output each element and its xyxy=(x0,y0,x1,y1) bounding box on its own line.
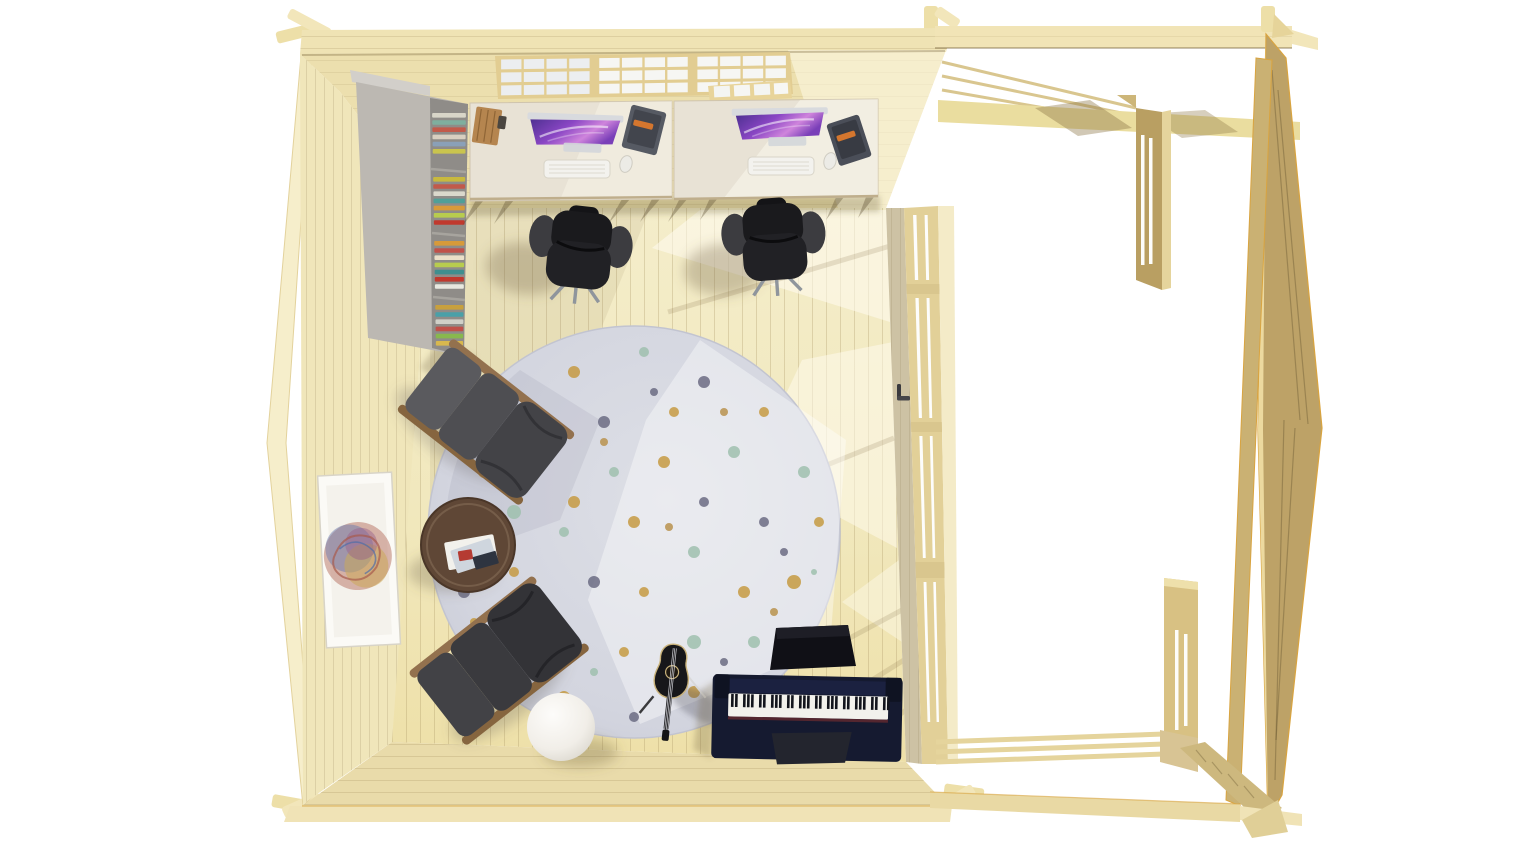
piano-black-key xyxy=(779,695,782,708)
piano-black-key xyxy=(819,696,822,709)
window-pane xyxy=(766,68,786,78)
piano-black-key xyxy=(871,697,874,710)
piano-black-key xyxy=(883,697,886,710)
piano-black-key xyxy=(835,696,838,709)
rug-dot xyxy=(609,467,619,477)
rug-dot xyxy=(650,388,658,396)
rug-dot xyxy=(699,497,709,507)
book-spine xyxy=(434,206,465,211)
rug-dot xyxy=(698,376,710,388)
rug-dot xyxy=(669,407,679,417)
rug-dot xyxy=(507,505,521,519)
window-pane xyxy=(524,72,544,82)
window-pane xyxy=(569,84,589,94)
rug-dot xyxy=(598,416,610,428)
rug-dot xyxy=(728,446,740,458)
window-pane xyxy=(547,84,567,94)
book-spine xyxy=(432,127,465,132)
rug-dot xyxy=(665,523,673,531)
rug-dot xyxy=(688,546,700,558)
piano-black-key xyxy=(743,694,746,707)
rug-dot xyxy=(814,517,824,527)
book-spine xyxy=(434,220,465,225)
base-plate xyxy=(284,806,952,822)
window-pane xyxy=(645,83,665,93)
guitar-headstock xyxy=(661,729,669,741)
rug-dot xyxy=(798,466,810,478)
window-pane xyxy=(667,70,687,80)
book-spine xyxy=(436,334,463,339)
window-pane xyxy=(743,69,763,79)
window-frame-bar xyxy=(915,562,944,578)
window-pane xyxy=(622,70,642,80)
piano-black-key xyxy=(831,696,834,709)
book-spine xyxy=(434,241,464,246)
window-pane xyxy=(524,85,544,95)
book-spine xyxy=(435,284,464,289)
desk-right xyxy=(674,99,878,199)
piano-black-key xyxy=(859,697,862,710)
piano-black-key xyxy=(791,695,794,708)
render-canvas xyxy=(0,0,1536,864)
window-pane xyxy=(599,84,619,94)
rug-dot xyxy=(639,587,649,597)
rug-dot xyxy=(619,647,629,657)
piano-black-key xyxy=(759,694,762,707)
book-spine xyxy=(435,270,464,275)
piano-black-key xyxy=(731,694,734,707)
window-pane xyxy=(622,83,642,93)
rug-dot xyxy=(559,527,569,537)
piano-black-key xyxy=(815,696,818,709)
book-spine xyxy=(433,191,465,196)
pergola-mid-post xyxy=(1164,578,1198,740)
book-spine xyxy=(435,263,464,268)
piano-black-key xyxy=(807,695,810,708)
piano-black-key xyxy=(787,695,790,708)
window-pane xyxy=(569,58,589,68)
book-spine xyxy=(433,177,465,182)
scene-svg xyxy=(0,0,1536,864)
rug-dot xyxy=(770,608,778,616)
rug-dot xyxy=(568,366,580,378)
window-pane xyxy=(697,69,717,79)
window-pane xyxy=(743,56,763,66)
book-spine xyxy=(434,248,464,253)
piano-black-key xyxy=(747,694,750,707)
imac-right-stand xyxy=(768,137,806,147)
rug-dot xyxy=(600,438,608,446)
book-spine xyxy=(432,135,465,140)
piano-black-key xyxy=(771,695,774,708)
window-frame-bar xyxy=(911,422,942,432)
window-pane xyxy=(599,58,619,68)
piano-black-key xyxy=(763,695,766,708)
piano-black-key xyxy=(751,694,754,707)
piano-cheek-left xyxy=(714,674,729,698)
book-spine xyxy=(436,327,464,332)
framed-artwork xyxy=(318,472,401,648)
book-spine xyxy=(434,255,464,260)
book-spine xyxy=(435,277,464,282)
desk-left xyxy=(470,101,672,201)
rug-dot xyxy=(588,576,600,588)
window-pane xyxy=(766,56,786,66)
book-spine xyxy=(433,149,466,154)
book-spine xyxy=(436,319,464,324)
window-pane xyxy=(645,70,665,80)
rug-dot xyxy=(780,548,788,556)
rug-dot xyxy=(748,636,760,648)
window-pane xyxy=(667,57,687,67)
piano-black-key xyxy=(855,697,858,710)
book-spine xyxy=(432,113,466,118)
rug-dot xyxy=(759,407,769,417)
rug-dot xyxy=(509,567,519,577)
window-pane xyxy=(720,56,740,66)
window-pane xyxy=(547,59,567,69)
book-spine xyxy=(434,199,465,204)
rug-dot xyxy=(590,668,598,676)
rug-dot xyxy=(629,712,639,722)
window-frame-bar xyxy=(906,284,939,294)
rug-dot xyxy=(658,456,670,468)
window-pane xyxy=(524,59,544,69)
window-pane xyxy=(569,71,589,81)
window-pane xyxy=(501,85,521,95)
piano-black-key xyxy=(827,696,830,709)
rug-dot xyxy=(568,496,580,508)
piano-black-key xyxy=(887,697,890,710)
window-pane xyxy=(501,72,521,82)
book-spine xyxy=(434,213,465,218)
piano-black-key xyxy=(843,696,846,709)
window-pane xyxy=(599,71,619,81)
window-pane xyxy=(697,57,717,67)
book-spine xyxy=(433,142,466,147)
piano-black-key xyxy=(803,695,806,708)
book-spine xyxy=(432,120,466,125)
rug-dot xyxy=(628,516,640,528)
window-pane xyxy=(622,58,642,68)
piano-black-key xyxy=(863,697,866,710)
window-pane xyxy=(501,59,521,69)
digital-piano xyxy=(693,674,903,767)
rug-dot xyxy=(720,408,728,416)
piano-pedal-unit xyxy=(771,730,852,766)
window-pane xyxy=(720,69,740,79)
top-window-band xyxy=(495,52,793,103)
rug-dot xyxy=(738,586,750,598)
imac-right-screen xyxy=(736,112,824,140)
piano-black-key xyxy=(875,697,878,710)
piano-black-key xyxy=(799,695,802,708)
book-spine xyxy=(435,312,463,317)
piano-black-key xyxy=(735,694,738,707)
rug-dot xyxy=(787,575,801,589)
window-pane xyxy=(645,57,665,67)
imac-left-stand xyxy=(563,143,601,153)
piano-black-key xyxy=(775,695,778,708)
piano-bench xyxy=(770,625,856,670)
pergola-top-beam-grain xyxy=(935,26,1292,48)
window-pane xyxy=(547,72,567,82)
rug-dot xyxy=(687,635,701,649)
rug-dot xyxy=(720,658,728,666)
piano-black-key xyxy=(847,696,850,709)
rug-dot xyxy=(639,347,649,357)
window-pane xyxy=(667,82,687,92)
book-spine xyxy=(433,184,465,189)
book-spine xyxy=(435,305,463,310)
rug-dot xyxy=(759,517,769,527)
rug-dot xyxy=(811,569,817,575)
